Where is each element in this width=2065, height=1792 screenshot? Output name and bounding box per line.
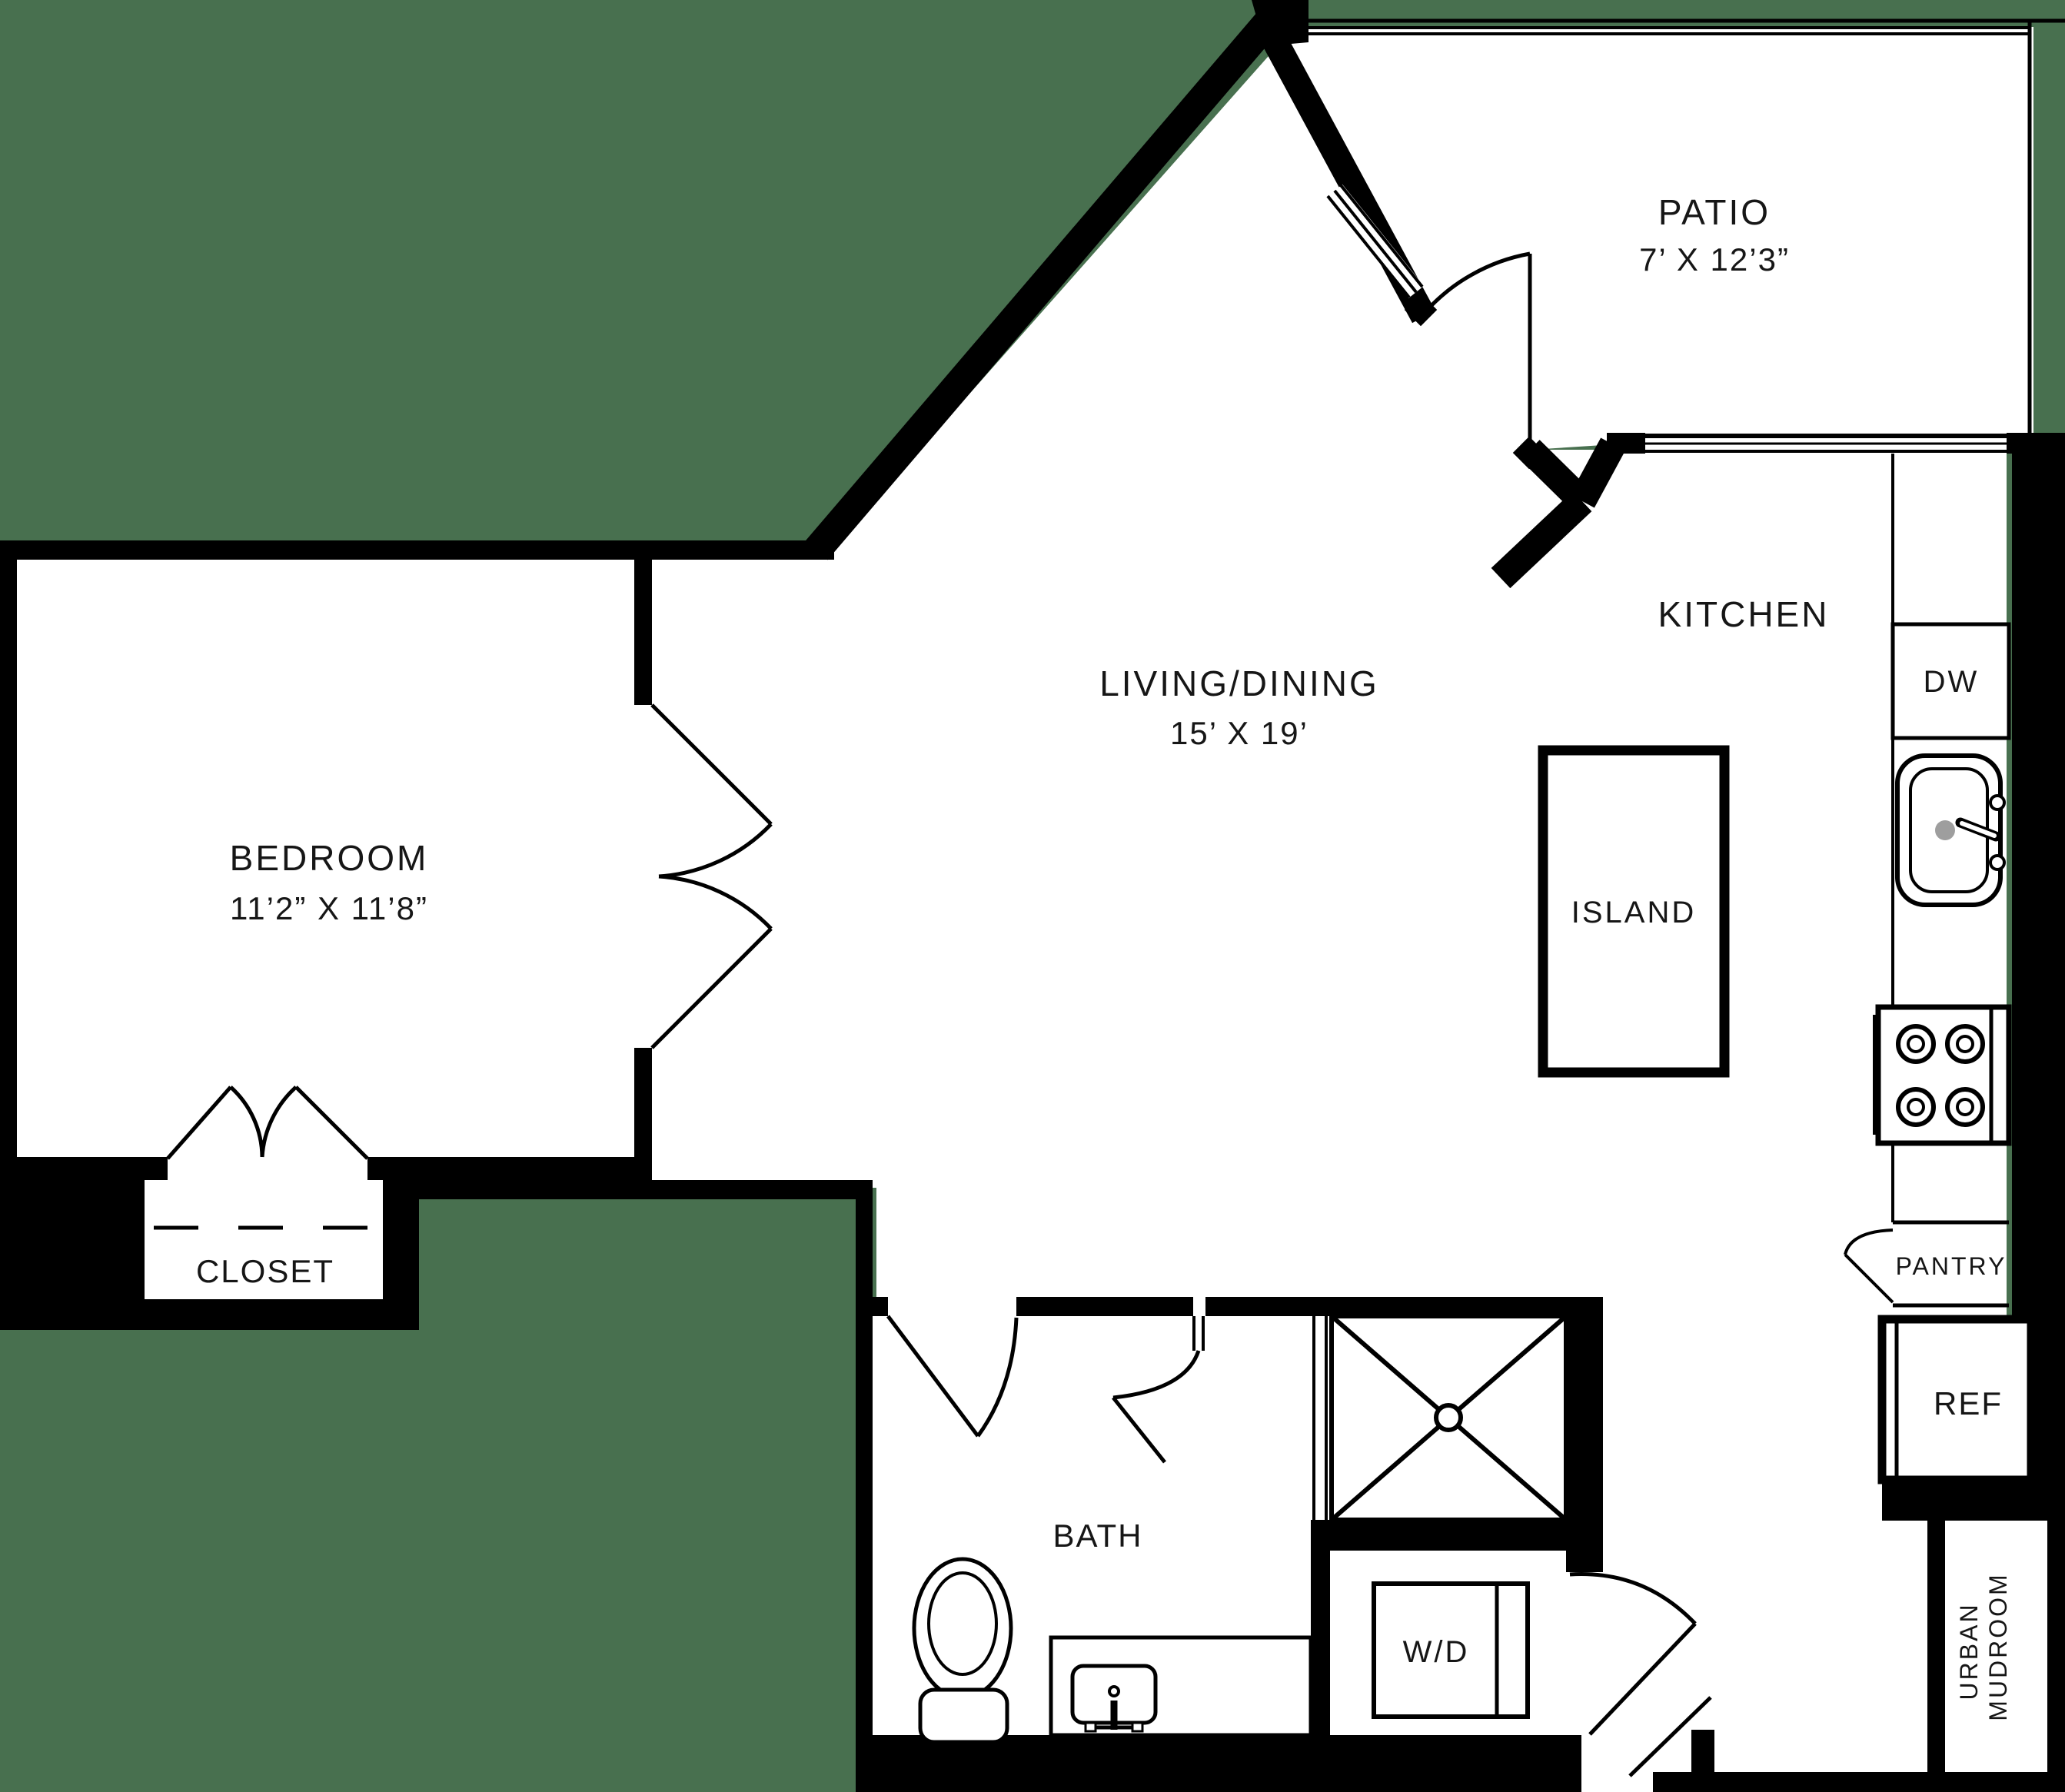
kitchen-label: KITCHEN: [1658, 594, 1830, 634]
ref-label: REF: [1934, 1385, 2003, 1421]
closet-label: CLOSET: [196, 1253, 334, 1289]
living-label: LIVING/DINING: [1099, 663, 1379, 703]
bedroom-dims: 11’2” X 11’8”: [230, 890, 428, 926]
mudroom-line1: URBAN: [1955, 1602, 1983, 1700]
patio-dims: 7’ X 12’3”: [1639, 241, 1790, 278]
dw-label: DW: [1924, 665, 1980, 699]
bath-label: BATH: [1053, 1518, 1143, 1554]
floorplan: PATIO 7’ X 12’3” KITCHEN LIVING/DINING 1…: [0, 0, 2065, 1792]
stove: [1874, 1007, 2009, 1143]
pantry-label: PANTRY: [1896, 1252, 2007, 1280]
kitchen-sink: [1897, 756, 2004, 905]
living-dims: 15’ X 19’: [1170, 715, 1308, 751]
bedroom-label: BEDROOM: [230, 838, 429, 878]
entry-threshold: [1581, 1735, 1658, 1792]
vanity: [1051, 1637, 1311, 1735]
toilet: [914, 1559, 1011, 1742]
sink-drain: [1935, 820, 1955, 840]
wd-label: W/D: [1403, 1635, 1470, 1669]
island-label: ISLAND: [1571, 896, 1697, 929]
mudroom-line2: MUDROOM: [1984, 1572, 2012, 1721]
patio-label: PATIO: [1658, 192, 1771, 232]
shower: [1314, 1316, 1566, 1520]
shower-drain: [1436, 1405, 1461, 1430]
